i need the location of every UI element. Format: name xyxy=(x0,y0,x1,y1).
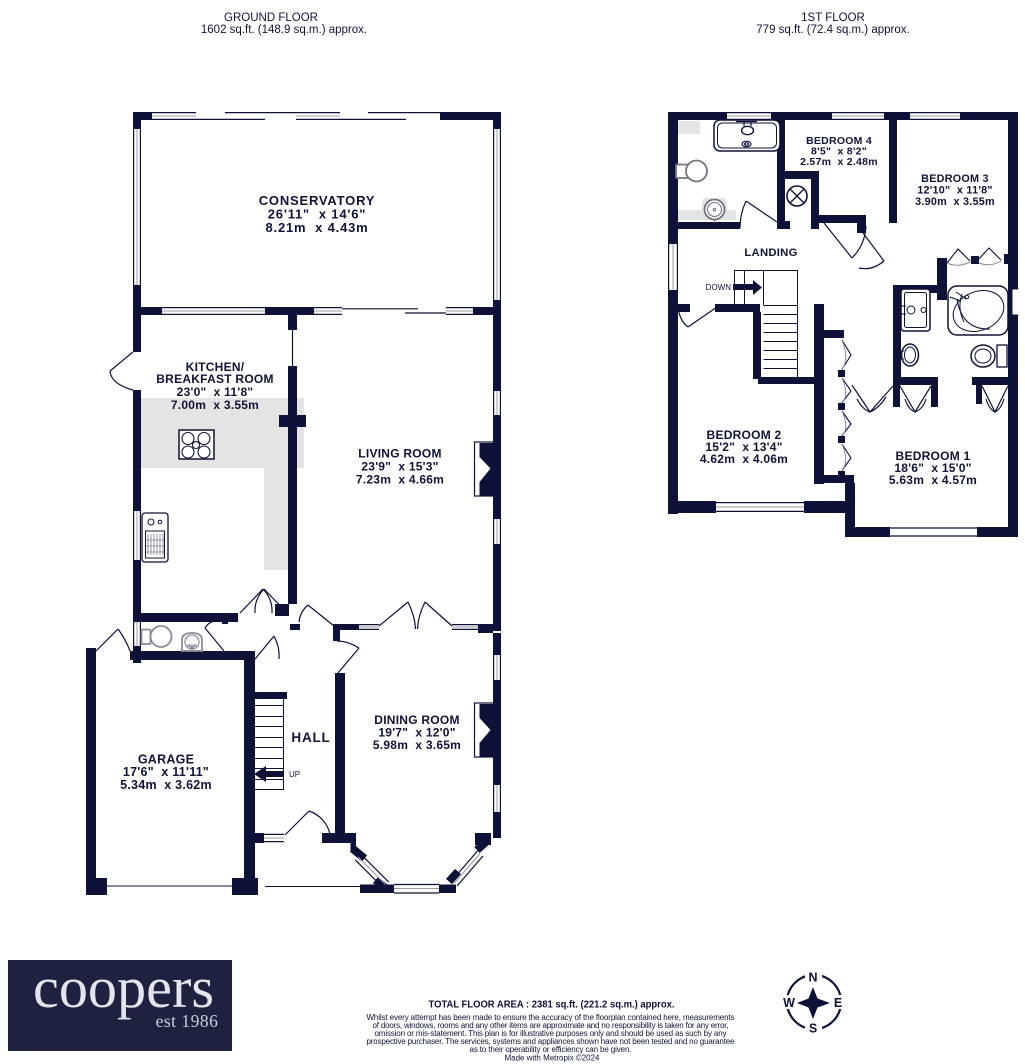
svg-text:7.23m x 4.66m: 7.23m x 4.66m xyxy=(356,473,444,487)
svg-text:5.63m x 4.57m: 5.63m x 4.57m xyxy=(889,473,977,487)
svg-text:HALL: HALL xyxy=(291,730,330,745)
svg-text:23'0" x 11'8": 23'0" x 11'8" xyxy=(177,385,254,399)
svg-text:12'10" x 11'8": 12'10" x 11'8" xyxy=(917,185,993,197)
svg-text:DOWN: DOWN xyxy=(706,283,732,292)
svg-text:Made with Metropix ©2024: Made with Metropix ©2024 xyxy=(505,1054,601,1063)
svg-text:8.21m x 4.43m: 8.21m x 4.43m xyxy=(266,220,369,235)
svg-text:est 1986: est 1986 xyxy=(156,1011,219,1031)
svg-text:23'9" x 15'3": 23'9" x 15'3" xyxy=(361,460,438,474)
svg-text:17'6" x 11'11": 17'6" x 11'11" xyxy=(123,765,209,779)
svg-text:5.34m x 3.62m: 5.34m x 3.62m xyxy=(120,778,212,792)
svg-text:2.57m x 2.48m: 2.57m x 2.48m xyxy=(800,156,878,168)
svg-text:BREAKFAST ROOM: BREAKFAST ROOM xyxy=(156,372,274,386)
svg-text:779 sq.ft. (72.4 sq.m.) approx: 779 sq.ft. (72.4 sq.m.) approx. xyxy=(756,24,909,36)
svg-text:LANDING: LANDING xyxy=(744,247,797,259)
svg-text:5.98m x 3.65m: 5.98m x 3.65m xyxy=(373,738,461,752)
svg-text:BEDROOM 3: BEDROOM 3 xyxy=(921,173,989,185)
svg-text:N: N xyxy=(808,971,817,985)
svg-text:TOTAL FLOOR AREA : 2381 sq.ft.: TOTAL FLOOR AREA : 2381 sq.ft. (221.2 sq… xyxy=(429,1000,675,1011)
svg-text:1ST FLOOR: 1ST FLOOR xyxy=(801,12,865,24)
svg-text:3.90m x 3.55m: 3.90m x 3.55m xyxy=(915,196,995,208)
svg-text:S: S xyxy=(809,1022,817,1036)
svg-text:1602 sq.ft. (148.9 sq.m.) appr: 1602 sq.ft. (148.9 sq.m.) approx. xyxy=(201,24,367,36)
svg-text:W: W xyxy=(783,996,795,1010)
svg-text:GROUND FLOOR: GROUND FLOOR xyxy=(224,12,318,24)
svg-text:4.62m x 4.06m: 4.62m x 4.06m xyxy=(700,452,788,466)
svg-text:E: E xyxy=(834,996,842,1010)
svg-text:7.00m x 3.55m: 7.00m x 3.55m xyxy=(171,398,259,412)
svg-text:LIVING ROOM: LIVING ROOM xyxy=(358,447,441,461)
svg-text:UP: UP xyxy=(289,770,300,779)
